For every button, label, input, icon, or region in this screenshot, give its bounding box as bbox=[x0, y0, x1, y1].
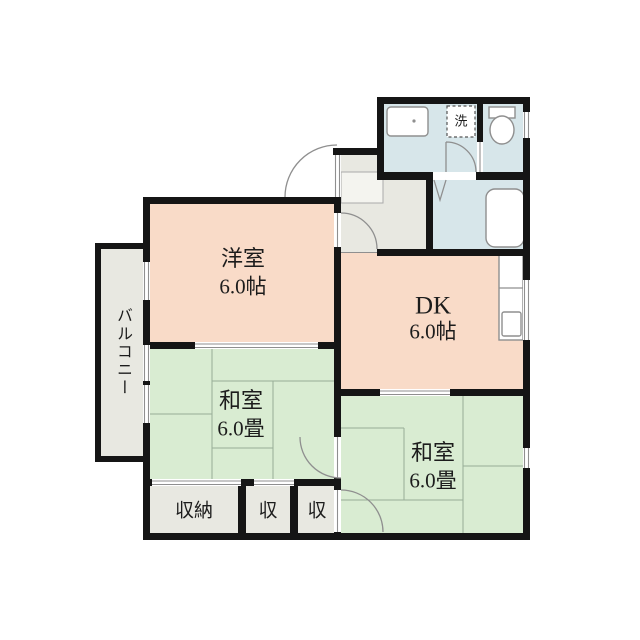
kitchen-sink bbox=[502, 312, 521, 336]
floor-plan-drawing bbox=[0, 0, 640, 640]
dk-label: DK bbox=[415, 294, 451, 319]
western-room-floor bbox=[146, 200, 338, 346]
western-room-size: 6.0帖 bbox=[219, 277, 266, 298]
toilet-bowl bbox=[490, 116, 514, 144]
washbasin-faucet bbox=[412, 119, 415, 122]
floor-plan: 洋室 6.0帖 DK 6.0帖 和室 6.0畳 和室 6.0畳 バルコニー 収納… bbox=[0, 0, 640, 640]
balcony-label: バルコニー bbox=[114, 307, 130, 397]
japanese-lower-label: 和室 bbox=[411, 442, 455, 464]
closet-small-label: 収 bbox=[307, 502, 326, 521]
closet-large-label: 収納 bbox=[175, 502, 213, 521]
genkan-step bbox=[341, 172, 383, 203]
bathtub bbox=[486, 189, 524, 247]
dk-size: 6.0帖 bbox=[409, 322, 456, 343]
western-room-label: 洋室 bbox=[221, 248, 265, 270]
japanese-upper-label: 和室 bbox=[219, 390, 263, 412]
washer-space-label: 洗 bbox=[454, 115, 467, 128]
japanese-upper-floor bbox=[146, 345, 338, 485]
washbasin bbox=[387, 107, 428, 136]
japanese-lower-size: 6.0畳 bbox=[409, 471, 456, 492]
entry-door-arc bbox=[285, 145, 337, 197]
japanese-upper-size: 6.0畳 bbox=[217, 419, 264, 440]
closet-mid-label: 収 bbox=[258, 502, 277, 521]
